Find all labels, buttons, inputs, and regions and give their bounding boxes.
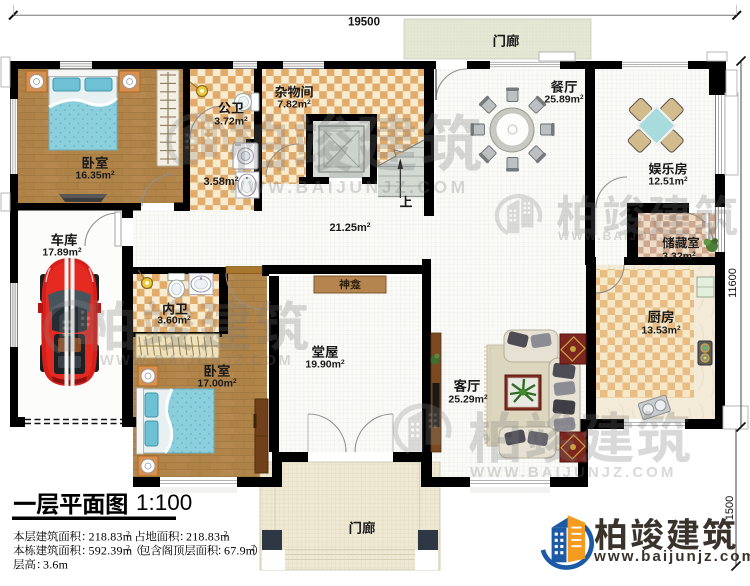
svg-text:www.baijunjz.com: www.baijunjz.com (593, 548, 750, 565)
svg-text:21.25m2: 21.25m2 (329, 222, 370, 234)
svg-text:19500: 19500 (348, 17, 380, 29)
svg-text:19.90m2: 19.90m2 (305, 359, 345, 371)
svg-text:2: 2 (126, 530, 130, 539)
svg-text:WWW.BAIJUNJZ.COM: WWW.BAIJUNJZ.COM (100, 353, 293, 369)
svg-text:3.32m2: 3.32m2 (662, 251, 696, 263)
svg-text:2: 2 (224, 530, 228, 539)
svg-text:25.29m2: 25.29m2 (448, 394, 488, 406)
svg-text:2: 2 (126, 544, 130, 553)
svg-text:3.58m2: 3.58m2 (204, 176, 239, 188)
svg-text:3.6m: 3.6m (43, 558, 69, 572)
svg-text:7.82m2: 7.82m2 (277, 99, 311, 111)
svg-text:16.35m2: 16.35m2 (75, 170, 115, 182)
svg-text:1500: 1500 (724, 496, 736, 520)
svg-text:17.00m2: 17.00m2 (197, 378, 237, 390)
svg-text:WWW.BAIJUNJZ.COM: WWW.BAIJUNJZ.COM (470, 464, 676, 481)
svg-text:3.60m2: 3.60m2 (157, 315, 191, 327)
svg-text:13.53m2: 13.53m2 (641, 325, 681, 337)
svg-text:WWW.BAIJUNJZ.COM: WWW.BAIJUNJZ.COM (228, 177, 469, 197)
svg-text:1:100: 1:100 (136, 490, 192, 515)
svg-text:2: 2 (251, 544, 255, 553)
svg-text:12.51m2: 12.51m2 (648, 176, 688, 188)
svg-text:25.89m2: 25.89m2 (544, 94, 584, 106)
svg-text:3.72m2: 3.72m2 (214, 116, 248, 128)
svg-text:17.89m2: 17.89m2 (42, 247, 82, 259)
svg-text:11600: 11600 (727, 268, 739, 298)
